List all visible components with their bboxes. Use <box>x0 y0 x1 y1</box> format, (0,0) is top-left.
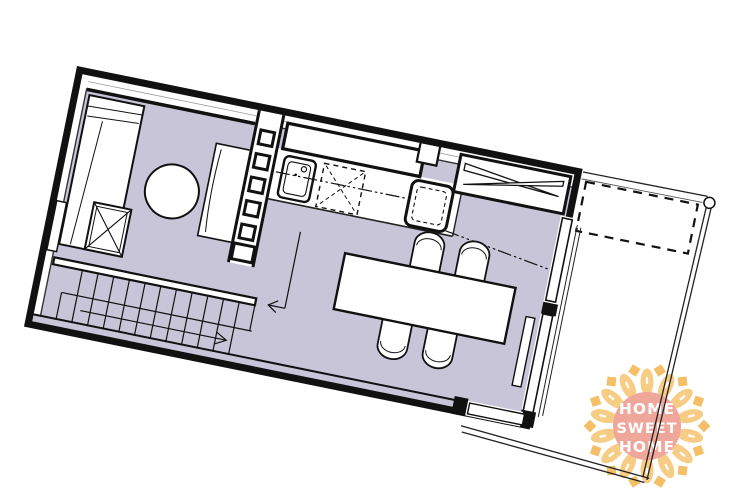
logo-line-1: HOME <box>619 400 675 418</box>
shelf-box-large <box>231 243 255 263</box>
storage-chest <box>85 202 132 257</box>
shelf-box <box>239 224 256 241</box>
shelf-box <box>258 130 275 147</box>
logo-line-2: SWEET <box>616 421 677 437</box>
floorplan-image: HOME SWEET HOME <box>0 0 740 493</box>
oven <box>404 179 454 232</box>
logo-line-3: HOME <box>619 438 675 456</box>
home-sweet-home-logo: HOME SWEET HOME <box>584 364 711 488</box>
shelf-box <box>249 177 266 194</box>
shelf-box <box>244 201 261 218</box>
logo-text: HOME SWEET HOME <box>616 400 677 456</box>
shelf-box <box>253 153 270 170</box>
floorplan-svg: HOME SWEET HOME <box>0 0 740 493</box>
railing-post <box>703 196 716 209</box>
balcony-skylight <box>576 182 698 254</box>
